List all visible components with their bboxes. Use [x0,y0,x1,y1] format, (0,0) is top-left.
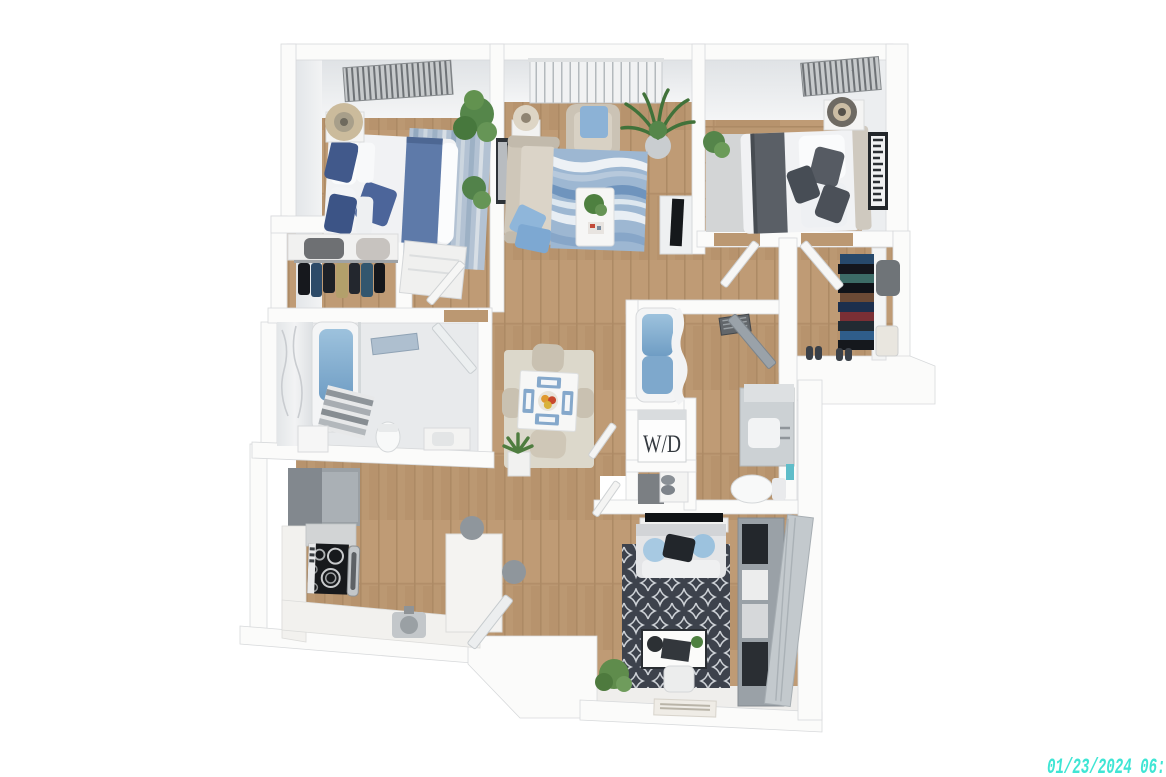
svg-text:W/D: W/D [643,431,681,458]
svg-text:01/23/2024 06:5: 01/23/2024 06:5 [1047,755,1166,777]
